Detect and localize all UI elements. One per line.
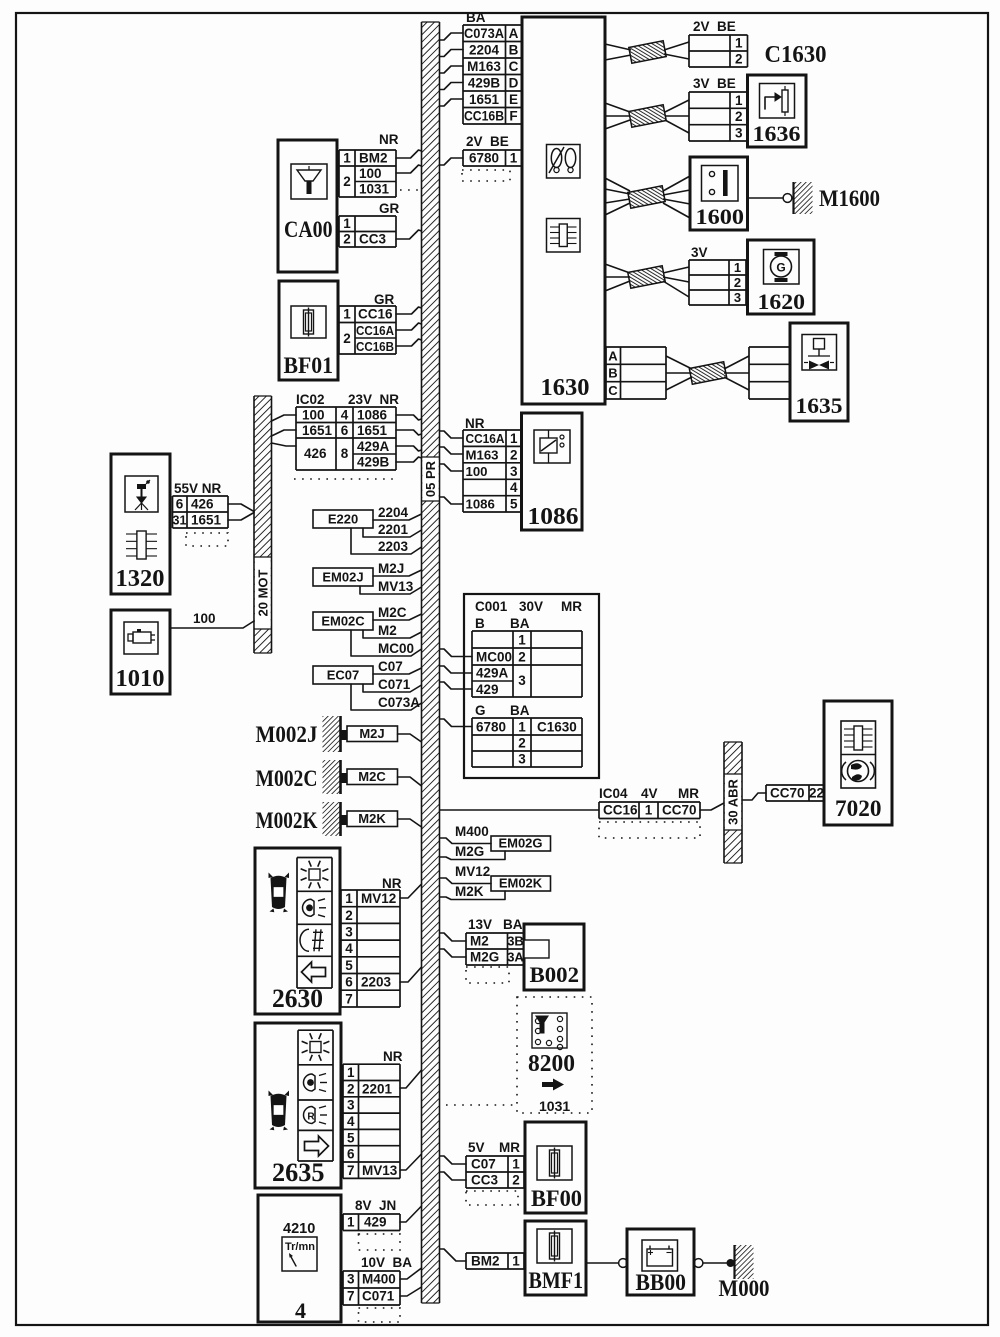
svg-text:2V BE: 2V BE bbox=[466, 134, 509, 149]
svg-text:10V BA: 10V BA bbox=[361, 1255, 412, 1270]
svg-text:MR: MR bbox=[561, 599, 582, 614]
svg-text:4: 4 bbox=[347, 1114, 355, 1129]
svg-text:1: 1 bbox=[734, 260, 741, 275]
svg-text:4: 4 bbox=[510, 480, 518, 495]
svg-text:3: 3 bbox=[734, 290, 741, 305]
svg-text:6: 6 bbox=[176, 497, 184, 512]
svg-text:BF01: BF01 bbox=[284, 353, 334, 378]
svg-text:3B: 3B bbox=[507, 934, 524, 949]
svg-text:GR: GR bbox=[374, 292, 395, 307]
svg-text:C001: C001 bbox=[475, 599, 508, 614]
svg-text:1: 1 bbox=[343, 307, 351, 322]
svg-text:429: 429 bbox=[364, 1215, 387, 1230]
svg-text:1: 1 bbox=[735, 36, 743, 51]
svg-text:BA: BA bbox=[510, 616, 530, 631]
svg-text:30V: 30V bbox=[519, 599, 543, 614]
svg-text:EC07: EC07 bbox=[327, 668, 360, 683]
svg-text:1: 1 bbox=[347, 1065, 355, 1080]
svg-text:M2G: M2G bbox=[470, 950, 499, 965]
svg-text:1: 1 bbox=[347, 1215, 355, 1230]
svg-text:C: C bbox=[608, 383, 618, 398]
svg-text:CA00: CA00 bbox=[284, 217, 333, 242]
svg-text:429A: 429A bbox=[357, 439, 390, 454]
svg-text:BM2: BM2 bbox=[359, 151, 388, 166]
svg-text:1: 1 bbox=[512, 1157, 520, 1172]
svg-text:G: G bbox=[776, 261, 785, 275]
svg-text:EM02K: EM02K bbox=[499, 876, 543, 891]
svg-text:2201: 2201 bbox=[362, 1082, 393, 1097]
svg-text:2630: 2630 bbox=[272, 984, 323, 1013]
svg-text:IC04: IC04 bbox=[599, 786, 628, 801]
svg-text:3V BE: 3V BE bbox=[693, 76, 736, 91]
svg-text:3: 3 bbox=[518, 752, 526, 767]
svg-text:3: 3 bbox=[518, 673, 526, 688]
svg-text:3: 3 bbox=[347, 1272, 355, 1287]
svg-text:5: 5 bbox=[345, 958, 353, 973]
svg-text:GR: GR bbox=[379, 201, 400, 216]
svg-text:CC16A: CC16A bbox=[356, 323, 394, 338]
svg-text:1651: 1651 bbox=[469, 92, 500, 107]
svg-text:100: 100 bbox=[302, 408, 325, 423]
svg-text:6780: 6780 bbox=[469, 151, 499, 166]
svg-text:55V NR: 55V NR bbox=[174, 481, 222, 496]
svg-text:1010: 1010 bbox=[116, 666, 165, 692]
svg-text:3V: 3V bbox=[691, 245, 708, 260]
svg-text:1620: 1620 bbox=[758, 289, 806, 314]
svg-text:MC00: MC00 bbox=[476, 650, 512, 665]
svg-text:7: 7 bbox=[347, 1163, 355, 1178]
svg-text:M163: M163 bbox=[467, 59, 501, 74]
svg-text:CC16: CC16 bbox=[358, 307, 393, 322]
svg-text:13V: 13V bbox=[468, 917, 492, 932]
svg-text:1086: 1086 bbox=[357, 408, 388, 423]
svg-text:1636: 1636 bbox=[753, 121, 801, 146]
svg-text:23V NR: 23V NR bbox=[348, 392, 399, 407]
svg-text:IC02: IC02 bbox=[296, 392, 325, 407]
svg-text:1: 1 bbox=[343, 151, 351, 166]
svg-text:MV12: MV12 bbox=[361, 891, 396, 906]
svg-text:MV12: MV12 bbox=[455, 864, 490, 879]
svg-text:NR: NR bbox=[383, 1049, 403, 1064]
svg-text:MV13: MV13 bbox=[378, 579, 414, 594]
svg-text:Tr/mn: Tr/mn bbox=[285, 1241, 315, 1253]
svg-text:100: 100 bbox=[466, 464, 488, 479]
svg-text:2635: 2635 bbox=[272, 1158, 325, 1187]
svg-text:CC16A: CC16A bbox=[466, 431, 505, 446]
svg-text:4210: 4210 bbox=[283, 1221, 315, 1237]
svg-text:A: A bbox=[608, 348, 618, 363]
svg-text:1651: 1651 bbox=[191, 513, 222, 528]
svg-text:3: 3 bbox=[510, 464, 518, 479]
svg-text:MV13: MV13 bbox=[362, 1163, 398, 1178]
svg-text:6: 6 bbox=[345, 975, 353, 990]
svg-text:5: 5 bbox=[510, 497, 518, 512]
svg-text:M2C: M2C bbox=[378, 605, 407, 620]
svg-text:7020: 7020 bbox=[835, 796, 882, 821]
svg-text:2203: 2203 bbox=[378, 539, 409, 554]
svg-text:M002J: M002J bbox=[256, 722, 318, 747]
svg-text:2: 2 bbox=[343, 331, 351, 346]
svg-text:1: 1 bbox=[345, 891, 353, 906]
svg-text:30 ABR: 30 ABR bbox=[726, 779, 741, 825]
svg-text:1: 1 bbox=[510, 151, 518, 166]
svg-text:C1630: C1630 bbox=[537, 720, 577, 735]
svg-text:100: 100 bbox=[193, 611, 216, 626]
svg-text:C1630: C1630 bbox=[765, 42, 827, 68]
svg-text:3: 3 bbox=[347, 1098, 355, 1113]
svg-text:22: 22 bbox=[809, 786, 824, 801]
svg-text:D: D bbox=[509, 75, 519, 90]
svg-text:M2C: M2C bbox=[358, 769, 386, 784]
svg-text:2204: 2204 bbox=[378, 505, 409, 520]
svg-text:C071: C071 bbox=[362, 1289, 395, 1304]
svg-text:B: B bbox=[475, 616, 485, 631]
svg-text:CC3: CC3 bbox=[471, 1173, 498, 1188]
svg-text:6780: 6780 bbox=[476, 720, 506, 735]
svg-text:C07: C07 bbox=[378, 659, 403, 674]
svg-text:M2: M2 bbox=[470, 934, 489, 949]
svg-text:M163: M163 bbox=[466, 447, 499, 462]
svg-text:M2G: M2G bbox=[455, 844, 484, 859]
svg-text:1: 1 bbox=[343, 216, 351, 231]
svg-text:B: B bbox=[509, 42, 519, 57]
svg-text:1: 1 bbox=[645, 803, 653, 818]
svg-text:2204: 2204 bbox=[469, 42, 500, 57]
svg-text:R: R bbox=[307, 1112, 315, 1123]
svg-text:NR: NR bbox=[382, 876, 402, 891]
svg-text:2201: 2201 bbox=[378, 522, 409, 537]
svg-text:4: 4 bbox=[295, 1298, 306, 1323]
svg-text:E220: E220 bbox=[328, 512, 358, 527]
svg-text:7: 7 bbox=[345, 991, 353, 1006]
svg-text:3: 3 bbox=[735, 126, 743, 141]
svg-text:5: 5 bbox=[347, 1130, 355, 1145]
svg-text:B002: B002 bbox=[530, 962, 580, 987]
svg-text:CC70: CC70 bbox=[662, 803, 697, 818]
svg-text:1086: 1086 bbox=[528, 504, 579, 530]
svg-text:1600: 1600 bbox=[696, 204, 745, 229]
svg-text:C: C bbox=[509, 59, 519, 74]
svg-text:G: G bbox=[475, 703, 486, 718]
svg-text:426: 426 bbox=[304, 446, 327, 461]
svg-text:BMF1: BMF1 bbox=[529, 1268, 584, 1293]
svg-text:M1600: M1600 bbox=[819, 186, 880, 211]
svg-text:05 PR: 05 PR bbox=[423, 460, 438, 497]
svg-text:NR: NR bbox=[465, 416, 485, 431]
svg-text:CC3: CC3 bbox=[359, 232, 386, 247]
svg-text:2: 2 bbox=[735, 109, 743, 124]
svg-text:M002K: M002K bbox=[256, 808, 318, 833]
svg-text:2: 2 bbox=[735, 52, 743, 67]
svg-text:A: A bbox=[509, 26, 519, 41]
svg-text:2: 2 bbox=[510, 447, 518, 462]
svg-text:MR: MR bbox=[499, 1140, 520, 1155]
svg-text:1: 1 bbox=[512, 1254, 520, 1269]
svg-text:8: 8 bbox=[341, 446, 349, 461]
svg-text:BM2: BM2 bbox=[471, 1254, 500, 1269]
svg-text:2: 2 bbox=[518, 650, 526, 665]
svg-text:1630: 1630 bbox=[541, 375, 590, 401]
svg-text:1635: 1635 bbox=[796, 393, 843, 418]
svg-text:6: 6 bbox=[347, 1147, 355, 1162]
svg-text:426: 426 bbox=[191, 497, 214, 512]
svg-text:1031: 1031 bbox=[359, 182, 390, 197]
svg-text:M2: M2 bbox=[378, 623, 397, 638]
svg-text:MR: MR bbox=[678, 786, 699, 801]
svg-text:429B: 429B bbox=[468, 75, 501, 90]
svg-text:C073A: C073A bbox=[464, 26, 504, 41]
svg-text:B: B bbox=[608, 366, 617, 381]
svg-text:2: 2 bbox=[512, 1173, 520, 1188]
svg-text:F: F bbox=[509, 108, 517, 123]
svg-text:2: 2 bbox=[345, 908, 353, 923]
svg-text:3: 3 bbox=[345, 924, 353, 939]
svg-text:1031: 1031 bbox=[539, 1098, 570, 1114]
svg-text:M400: M400 bbox=[362, 1272, 396, 1287]
svg-text:NR: NR bbox=[379, 132, 399, 147]
svg-text:EM02J: EM02J bbox=[322, 570, 363, 585]
svg-text:5V: 5V bbox=[468, 1140, 485, 1155]
svg-text:1651: 1651 bbox=[302, 423, 333, 438]
svg-text:4V: 4V bbox=[641, 786, 658, 801]
svg-text:20 MOT: 20 MOT bbox=[255, 569, 270, 616]
svg-text:BA: BA bbox=[503, 917, 523, 932]
svg-text:MC00: MC00 bbox=[378, 641, 414, 656]
svg-text:6: 6 bbox=[341, 423, 349, 438]
svg-text:8V JN: 8V JN bbox=[355, 1198, 396, 1213]
svg-text:1320: 1320 bbox=[116, 566, 165, 592]
svg-text:BA: BA bbox=[510, 703, 530, 718]
svg-text:31: 31 bbox=[173, 514, 187, 528]
svg-text:8200: 8200 bbox=[528, 1051, 575, 1077]
svg-text:2: 2 bbox=[518, 736, 526, 751]
svg-text:429: 429 bbox=[476, 682, 499, 697]
svg-text:2203: 2203 bbox=[361, 975, 392, 990]
svg-text:E: E bbox=[509, 92, 518, 107]
svg-text:EM02G: EM02G bbox=[498, 836, 542, 851]
svg-text:M000: M000 bbox=[719, 1276, 770, 1301]
svg-text:1: 1 bbox=[518, 720, 526, 735]
svg-text:100: 100 bbox=[359, 166, 382, 181]
svg-text:429A: 429A bbox=[476, 666, 509, 681]
svg-text:BB00: BB00 bbox=[636, 1270, 687, 1295]
svg-text:CC16B: CC16B bbox=[464, 108, 504, 123]
svg-text:2: 2 bbox=[343, 174, 351, 189]
svg-text:M002C: M002C bbox=[256, 766, 318, 791]
svg-text:7: 7 bbox=[347, 1289, 355, 1304]
svg-text:1: 1 bbox=[735, 93, 743, 108]
svg-text:CC16B: CC16B bbox=[356, 339, 394, 354]
svg-text:1086: 1086 bbox=[466, 497, 495, 512]
svg-text:EM02C: EM02C bbox=[321, 614, 365, 629]
svg-text:2: 2 bbox=[734, 275, 741, 290]
svg-text:1: 1 bbox=[510, 431, 518, 446]
svg-text:M2J: M2J bbox=[359, 726, 384, 741]
svg-text:3A: 3A bbox=[507, 950, 524, 965]
svg-text:1: 1 bbox=[518, 633, 526, 648]
svg-text:BA: BA bbox=[466, 10, 486, 25]
svg-text:2: 2 bbox=[347, 1081, 355, 1096]
svg-text:1651: 1651 bbox=[357, 423, 388, 438]
svg-text:429B: 429B bbox=[357, 455, 390, 470]
svg-text:2V BE: 2V BE bbox=[693, 19, 736, 34]
svg-text:4: 4 bbox=[345, 941, 353, 956]
svg-text:M2K: M2K bbox=[455, 884, 484, 899]
svg-text:C071: C071 bbox=[378, 677, 411, 692]
svg-text:C07: C07 bbox=[471, 1157, 496, 1172]
svg-text:4: 4 bbox=[341, 408, 349, 423]
svg-text:M2J: M2J bbox=[378, 561, 404, 576]
svg-text:M400: M400 bbox=[455, 824, 489, 839]
svg-text:M2K: M2K bbox=[358, 811, 386, 826]
svg-text:CC16: CC16 bbox=[603, 803, 638, 818]
svg-text:CC70: CC70 bbox=[770, 786, 805, 801]
svg-text:2: 2 bbox=[343, 232, 351, 247]
svg-text:BF00: BF00 bbox=[531, 1186, 582, 1211]
